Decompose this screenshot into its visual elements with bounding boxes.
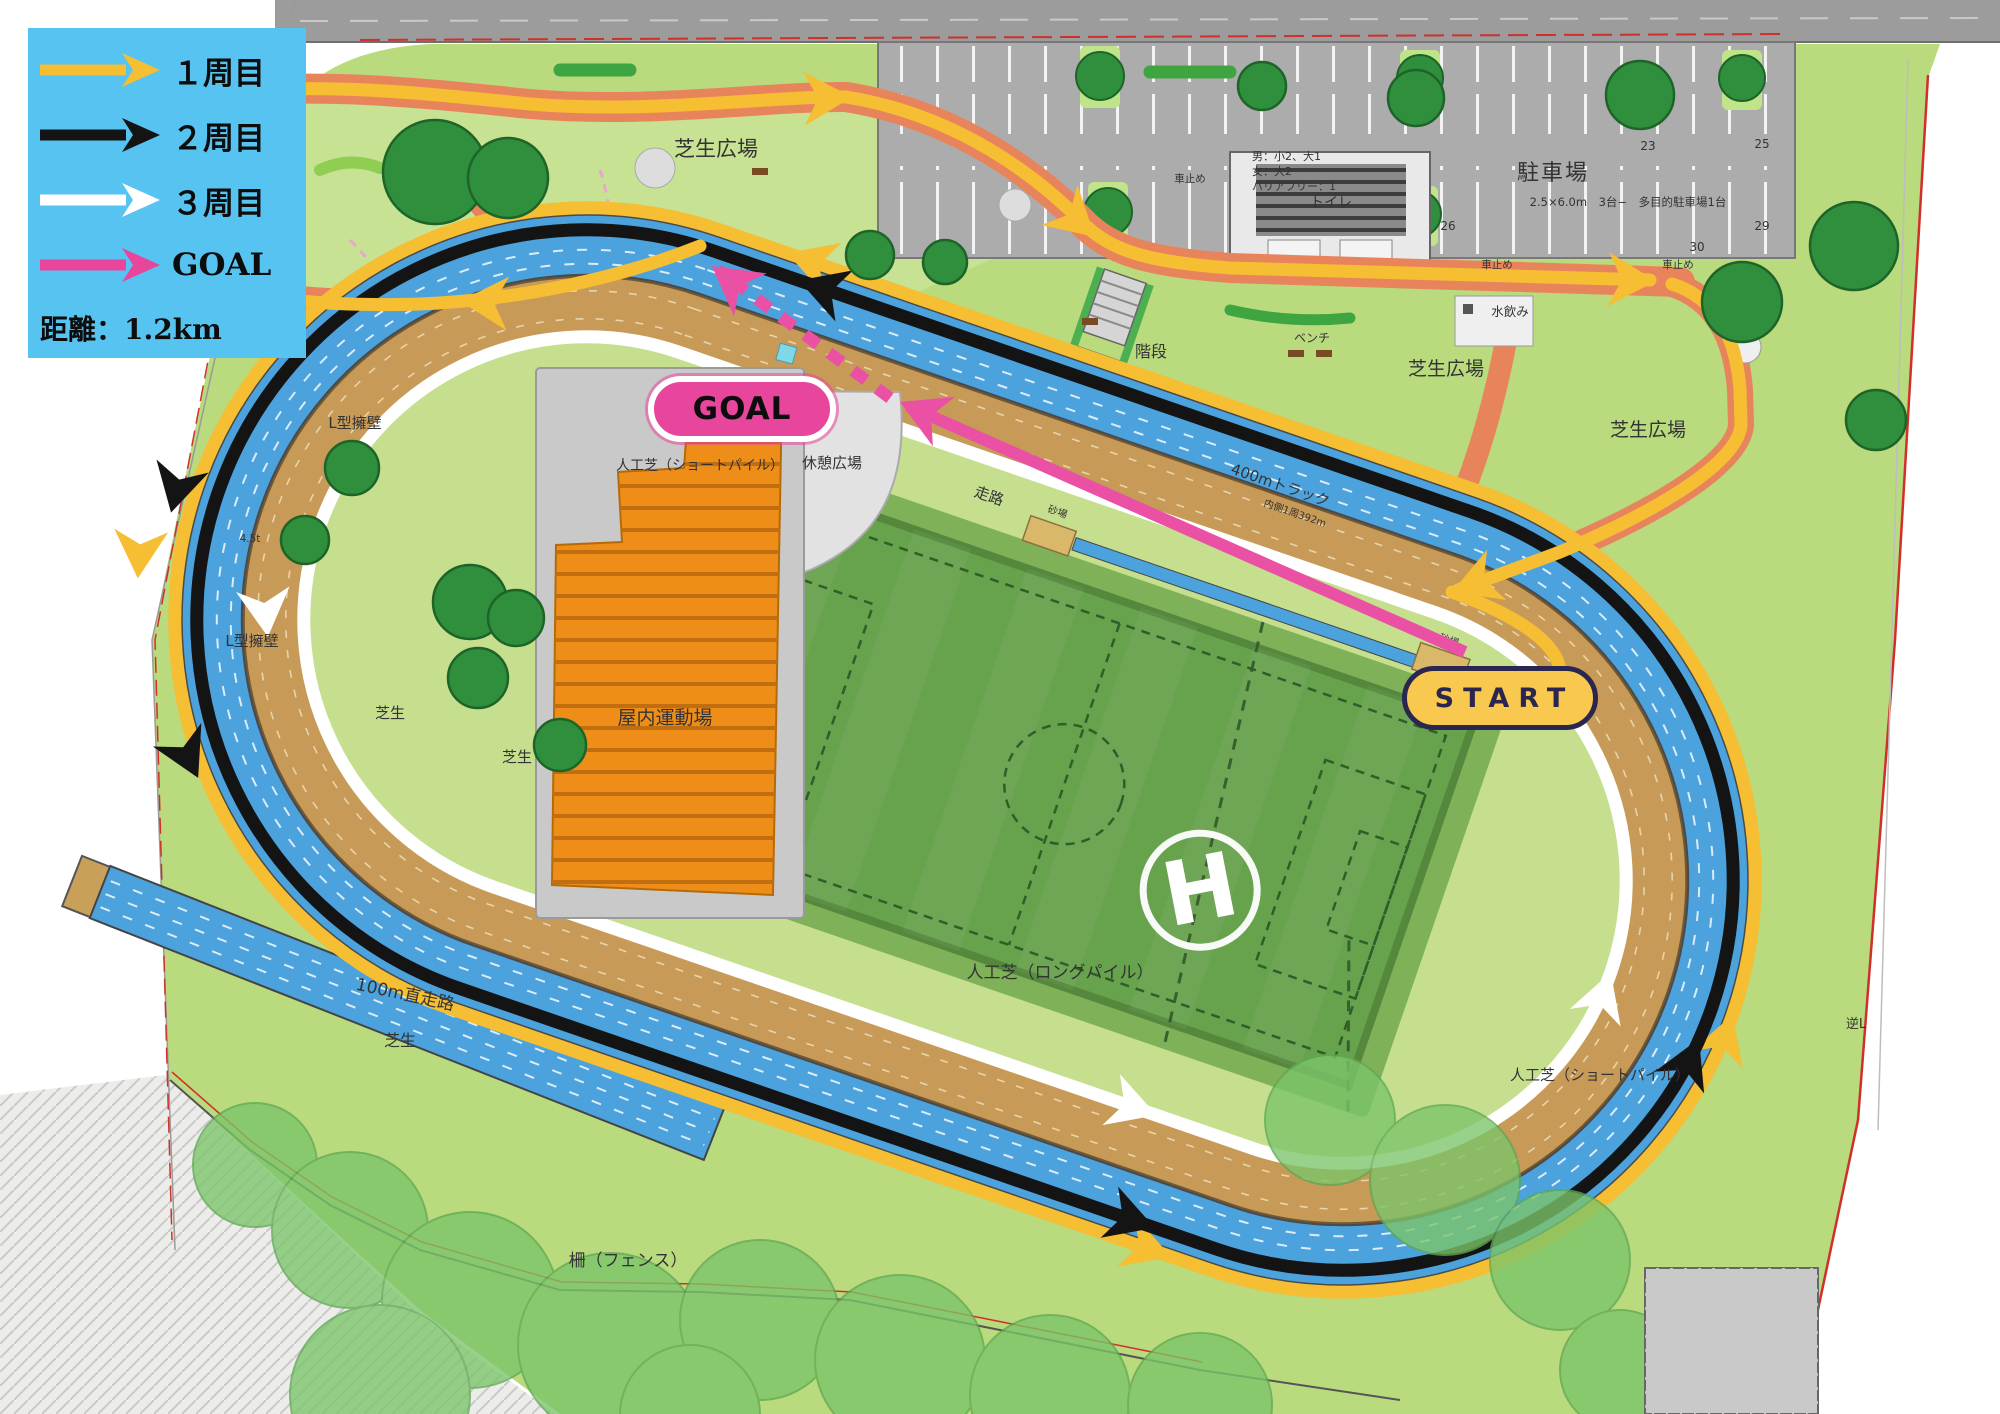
label-l-wall-1: L型擁壁 [328, 414, 381, 432]
label-stairs: 階段 [1135, 342, 1167, 361]
label-rest-plaza: 休憩広場 [802, 454, 862, 472]
legend-lap3-row: ３周目 [38, 174, 296, 226]
label-lawn-plaza-mid: 芝生広場 [1408, 358, 1484, 380]
label-lawn-3: 芝生 [384, 1031, 416, 1050]
label-turf-long: 人工芝（ロングパイル） [967, 963, 1154, 983]
top-road [275, 0, 2000, 42]
route-legend: １周目 ２周目 ３周目 GOAL 距離：1.2km [28, 28, 306, 358]
label-car-stop-3: 車止め [1662, 258, 1694, 271]
label-parking-detail: 2.5×6.0m 3台− 多目的駐車場1台 [1530, 195, 1727, 209]
goal-arrow-icon [38, 248, 160, 282]
legend-lap2-label: ２周目 [172, 113, 265, 158]
legend-lap2-row: ２周目 [38, 109, 296, 161]
label-toilet-detail-3: バリアフリー：1 [1252, 180, 1336, 193]
label-l-wall-2: L型擁壁 [225, 632, 278, 650]
label-parking-n26: 26 [1440, 219, 1455, 233]
label-toilet-detail-1: 男：小2、大1 [1252, 149, 1321, 163]
start-badge: START [1402, 666, 1598, 730]
label-parking: 駐車場 [1517, 161, 1589, 186]
label-reverse-l: 逆L [1846, 1016, 1867, 1032]
legend-distance: 距離：1.2km [40, 308, 296, 348]
label-fence: 柵（フェンス） [569, 1251, 688, 1271]
label-parking-n30: 30 [1689, 240, 1704, 254]
label-water: 水飲み [1491, 304, 1529, 319]
course-map-page: H 砂場 砂場 走路 400mトラック 内側1周392m [0, 0, 2000, 1414]
label-turf-short-right: 人工芝（ショートパイル） [1510, 1066, 1690, 1084]
label-toilet-detail-2: 女：大2 [1252, 164, 1292, 178]
label-car-stop-1: 車止め [1174, 172, 1206, 185]
legend-lap1-row: １周目 [38, 44, 296, 96]
bottom-right-building [1645, 1268, 1818, 1414]
lap3-arrow-icon [38, 183, 160, 217]
label-toilet: トイレ [1310, 195, 1352, 211]
lap1-arrow-icon [38, 53, 160, 87]
label-lawn-plaza-right: 芝生広場 [1610, 419, 1686, 441]
goal-badge: GOAL [648, 376, 836, 442]
label-lawn-2: 芝生 [502, 748, 532, 766]
legend-lap1-label: １周目 [172, 48, 265, 93]
label-dim: 4.5t [240, 533, 261, 545]
lap2-arrow-icon [38, 118, 160, 152]
legend-goal-label: GOAL [172, 247, 271, 283]
label-parking-n25: 25 [1754, 137, 1769, 151]
label-lawn-1: 芝生 [375, 704, 405, 722]
indoor-sports-building [536, 368, 804, 918]
label-lawn-plaza-top: 芝生広場 [674, 137, 758, 161]
label-car-stop-2: 車止め [1481, 258, 1513, 271]
legend-goal-row: GOAL [38, 239, 296, 291]
label-parking-n29: 29 [1754, 219, 1769, 233]
legend-lap3-label: ３周目 [172, 178, 265, 223]
label-indoor-field: 屋内運動場 [617, 707, 712, 729]
label-turf-short-top: 人工芝（ショートパイル） [616, 458, 784, 474]
label-parking-n23: 23 [1640, 139, 1655, 153]
label-bench: ベンチ [1294, 331, 1330, 345]
